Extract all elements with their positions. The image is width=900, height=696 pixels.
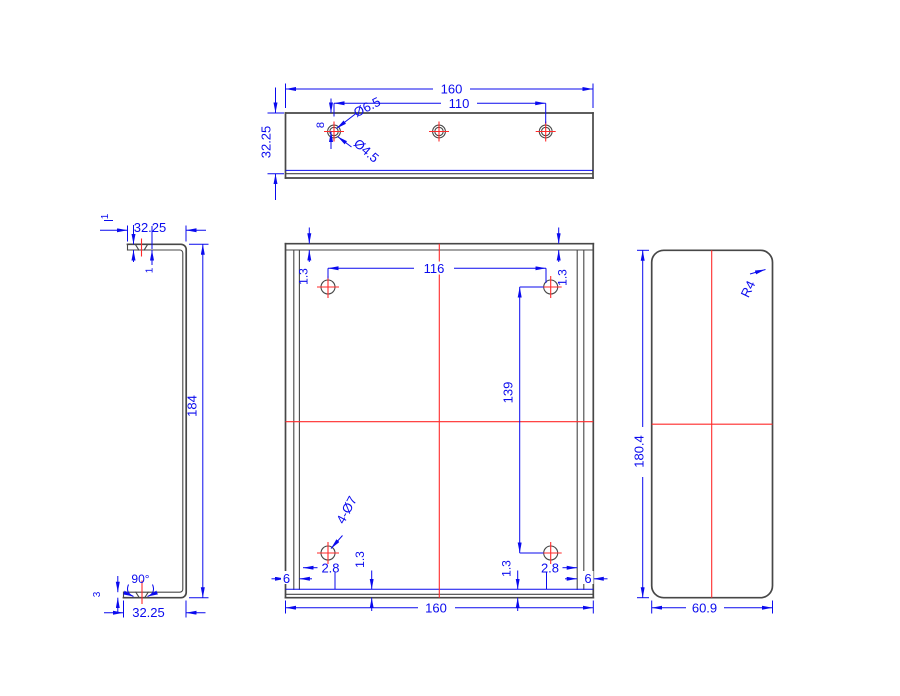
dim-overall-width-bottom: 160 — [286, 601, 594, 616]
dim-label: 32.25 — [134, 220, 167, 235]
dim-hole-spacing-x: 116 — [328, 261, 546, 283]
dim-thickness-top: 1 — [100, 213, 134, 262]
dim-label: 60.9 — [692, 601, 717, 616]
dim-hole-edge-right: 2.8 — [541, 561, 577, 590]
dim-label: 32.25 — [132, 605, 165, 620]
side-view: 32.25 1 1 184 90° 3 — [92, 213, 209, 620]
dim-flange-width-bottom: 32.25 — [104, 601, 206, 621]
dim-label: 1 — [100, 213, 111, 219]
dim-label: 184 — [185, 395, 200, 417]
dim-bend-angle: 90° — [127, 572, 153, 597]
dim-label: 1.3 — [353, 551, 367, 568]
dim-hole-edge-left: 2.8 — [303, 561, 340, 590]
dim-height: 184 — [185, 244, 209, 597]
front-view: 1.3 1.3 116 139 2.8 2.8 — [272, 228, 608, 616]
hole — [429, 122, 449, 142]
dim-offset-bottom-left: 1.3 — [353, 551, 372, 611]
dim-label: 3 — [92, 591, 103, 597]
centerlines — [286, 244, 594, 598]
dim-flange-width-top: 32.25 — [100, 220, 206, 242]
dim-label: 160 — [441, 82, 463, 97]
dim-label: 110 — [449, 96, 470, 111]
dim-label: 6 — [283, 571, 290, 586]
dim-label: 6 — [584, 571, 591, 586]
dim-label: 1.3 — [500, 560, 514, 577]
dim-label: 1.3 — [556, 269, 570, 286]
dim-label: 2.8 — [541, 561, 559, 576]
leader-counterbore: Ø6.5 — [337, 94, 383, 129]
dim-hole-spacing-y: 139 — [501, 287, 544, 553]
dim-offset-top-left: 1.3 — [297, 228, 311, 285]
leader-holes-note: 4-Ø7 — [331, 494, 360, 549]
dim-hole-edge-offset: 8 — [315, 99, 331, 150]
dim-overall-width-top: 160 — [286, 82, 594, 109]
dim-edge-offset: 3 — [92, 576, 118, 613]
right-view: R4 180.4 60.9 — [632, 250, 773, 615]
hole — [536, 122, 556, 142]
leader-corner-radius: R4 — [738, 270, 766, 300]
dim-width: 60.9 — [652, 601, 773, 616]
part-outline — [124, 244, 187, 597]
dim-label: 1.3 — [297, 268, 311, 285]
dim-label: Ø4.5 — [351, 136, 382, 166]
centerlines — [142, 239, 143, 605]
centerlines — [652, 250, 773, 597]
dim-flange-right: 6 — [565, 571, 608, 586]
dim-label: 180.4 — [632, 435, 647, 468]
dim-label: 90° — [131, 572, 149, 586]
top-view: 160 110 32.25 8 Ø6.5 Ø4.5 — [259, 82, 594, 201]
dim-label: 32.25 — [259, 126, 274, 159]
hole — [317, 276, 339, 298]
dim-label: 1 — [145, 267, 156, 273]
dim-offset-top-right: 1.3 — [556, 228, 570, 286]
dim-label: 116 — [424, 261, 445, 276]
dim-label: 139 — [501, 382, 516, 404]
dim-label: 4-Ø7 — [333, 494, 360, 527]
dim-offset-bottom-right: 1.3 — [500, 560, 518, 611]
dim-height: 180.4 — [632, 250, 650, 597]
dim-label: Ø6.5 — [351, 94, 383, 120]
engineering-drawing: 160 110 32.25 8 Ø6.5 Ø4.5 — [0, 0, 900, 696]
dim-label: 160 — [425, 601, 447, 616]
leader-drill: Ø4.5 — [338, 136, 383, 166]
dim-label: R4 — [738, 278, 759, 300]
dim-label: 8 — [315, 122, 327, 128]
dim-depth-top: 32.25 — [259, 88, 285, 201]
dim-label: 2.8 — [321, 561, 339, 576]
dim-flange-left: 6 — [272, 571, 313, 586]
